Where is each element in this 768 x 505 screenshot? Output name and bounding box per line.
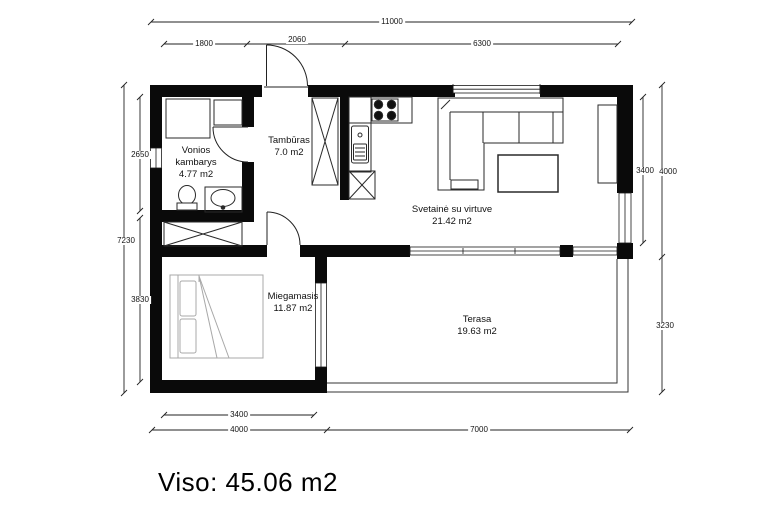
windows (151, 84, 632, 367)
stove (372, 99, 398, 121)
wall-top-left (150, 85, 262, 97)
dim-left-seg-2650: 2650 (129, 151, 151, 159)
room-label-hallway: Tambūras 7.0 m2 (268, 135, 310, 159)
dimension-lines (121, 19, 665, 433)
room-area: 4.77 m2 (167, 169, 225, 181)
room-area: 21.42 m2 (412, 216, 492, 228)
bedroom-door (267, 212, 300, 245)
room-name: Svetainė su virtuve (412, 204, 492, 216)
bathroom-sink-vanity (205, 187, 242, 212)
glass-door-terrace-right (573, 247, 617, 255)
bed (170, 275, 263, 358)
dim-right-room: 3400 (634, 167, 656, 175)
room-area: 19.63 m2 (457, 326, 497, 338)
dim-bottom-seg-4000: 4000 (228, 426, 250, 434)
dim-bottom-room: 3400 (228, 411, 250, 419)
dim-right-seg-4000: 4000 (657, 168, 679, 176)
kitchen-base-cabinet (349, 171, 375, 199)
entrance-door (264, 45, 309, 87)
room-name: Terasa (457, 314, 497, 326)
dim-left-seg-3830: 3830 (129, 296, 151, 304)
wall-bathroom-east-upper (242, 97, 254, 127)
room-label-living: Svetainė su virtuve 21.42 m2 (412, 204, 492, 228)
wall-bedroom-east-upper (315, 245, 327, 283)
washing-machine (214, 100, 242, 125)
dim-top-seg-2060: 2060 (286, 36, 308, 44)
dim-top-seg-1800: 1800 (193, 40, 215, 48)
wall-glass-post (560, 245, 573, 257)
glass-door-terrace-left (410, 247, 560, 255)
wall-bedroom-north-west (150, 245, 267, 257)
room-label-bathroom: Vonios kambarys 4.77 m2 (167, 145, 225, 181)
hall-cabinet (312, 98, 338, 185)
floor-plan-canvas: 11000 1800 2060 6300 7230 2650 3830 3400… (0, 0, 768, 505)
total-area-label: Viso: 45.06 m2 (158, 467, 338, 498)
wall-bottom (150, 380, 327, 393)
sofa (438, 98, 563, 190)
wall-right-corner (617, 243, 633, 259)
wardrobe-niche (164, 222, 242, 246)
window-left-bathroom (151, 148, 162, 168)
floor-plan-drawing (0, 0, 768, 505)
room-area: 7.0 m2 (268, 147, 310, 159)
shower-tray (166, 99, 210, 138)
dim-right-seg-3230: 3230 (654, 322, 676, 330)
room-name: Vonios kambarys (167, 145, 225, 169)
wall-bedroom-east-lower (315, 367, 327, 393)
room-name: Tambūras (268, 135, 310, 147)
tv-bench (598, 105, 617, 183)
room-name: Miegamasis (268, 291, 319, 303)
window-right-living (619, 193, 631, 243)
dim-top-total: 11000 (379, 18, 405, 26)
toilet (177, 186, 197, 211)
room-label-terrace: Terasa 19.63 m2 (457, 314, 497, 338)
wall-bathroom-east-lower (242, 162, 254, 222)
wall-right-upper (617, 97, 633, 193)
wall-top-mid (308, 85, 455, 97)
fixtures (164, 97, 617, 358)
wall-left-upper (150, 85, 162, 148)
kitchen-sink (352, 126, 369, 163)
room-label-bedroom: Miegamasis 11.87 m2 (268, 291, 319, 315)
dim-left-total: 7230 (115, 237, 137, 245)
wall-kitchen-divider (340, 97, 349, 200)
entrance-door-arc (267, 45, 308, 86)
coffee-table (498, 155, 558, 192)
dim-top-seg-6300: 6300 (471, 40, 493, 48)
bedroom-door-arc (267, 212, 300, 245)
window-top-living (453, 84, 540, 94)
room-area: 11.87 m2 (268, 303, 319, 315)
walls (150, 85, 633, 393)
dim-bottom-seg-7000: 7000 (468, 426, 490, 434)
wall-left-lower (150, 168, 162, 393)
wall-top-right (540, 85, 633, 97)
